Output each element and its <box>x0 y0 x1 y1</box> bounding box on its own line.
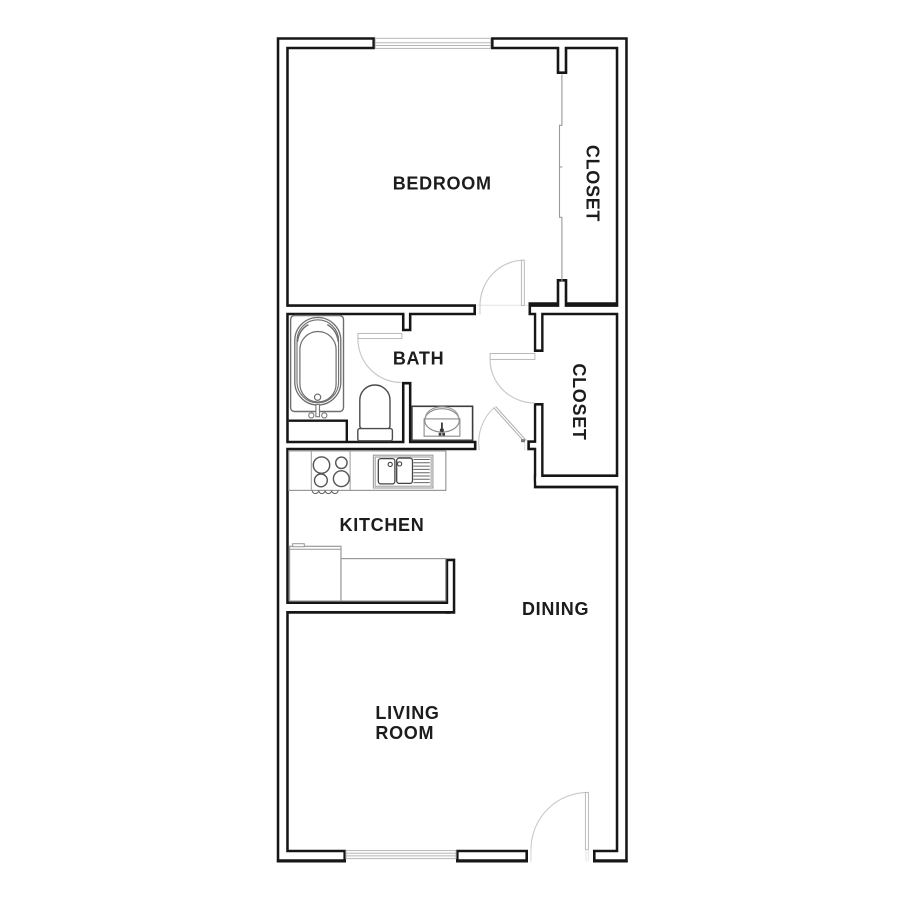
svg-text:LIVING: LIVING <box>375 703 439 723</box>
svg-text:DINING: DINING <box>522 599 589 619</box>
svg-text:BATH: BATH <box>393 349 444 369</box>
svg-text:ROOM: ROOM <box>375 723 434 743</box>
svg-text:BEDROOM: BEDROOM <box>393 174 492 194</box>
svg-text:CLOSET: CLOSET <box>569 363 589 440</box>
svg-text:KITCHEN: KITCHEN <box>340 515 425 535</box>
svg-text:CLOSET: CLOSET <box>582 145 602 222</box>
